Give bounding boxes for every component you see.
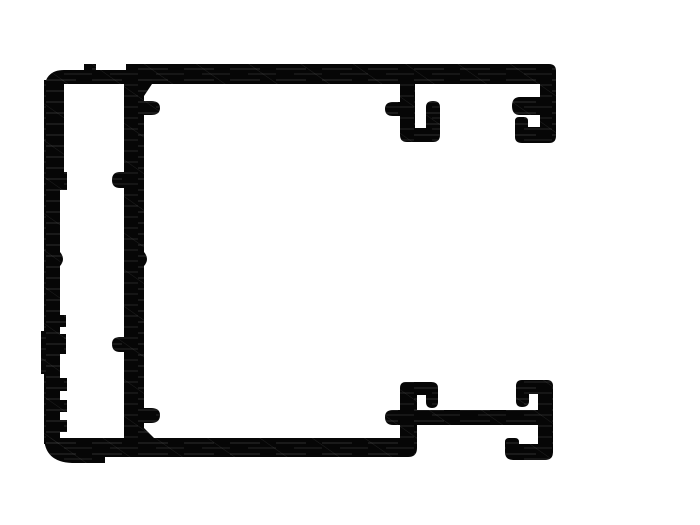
profile-streak-texture bbox=[41, 64, 556, 463]
drawing-canvas bbox=[0, 0, 700, 525]
profile-hatch-texture bbox=[41, 64, 556, 463]
profile-ink-layer bbox=[41, 64, 556, 463]
extrusion-profile-drawing bbox=[0, 0, 700, 525]
